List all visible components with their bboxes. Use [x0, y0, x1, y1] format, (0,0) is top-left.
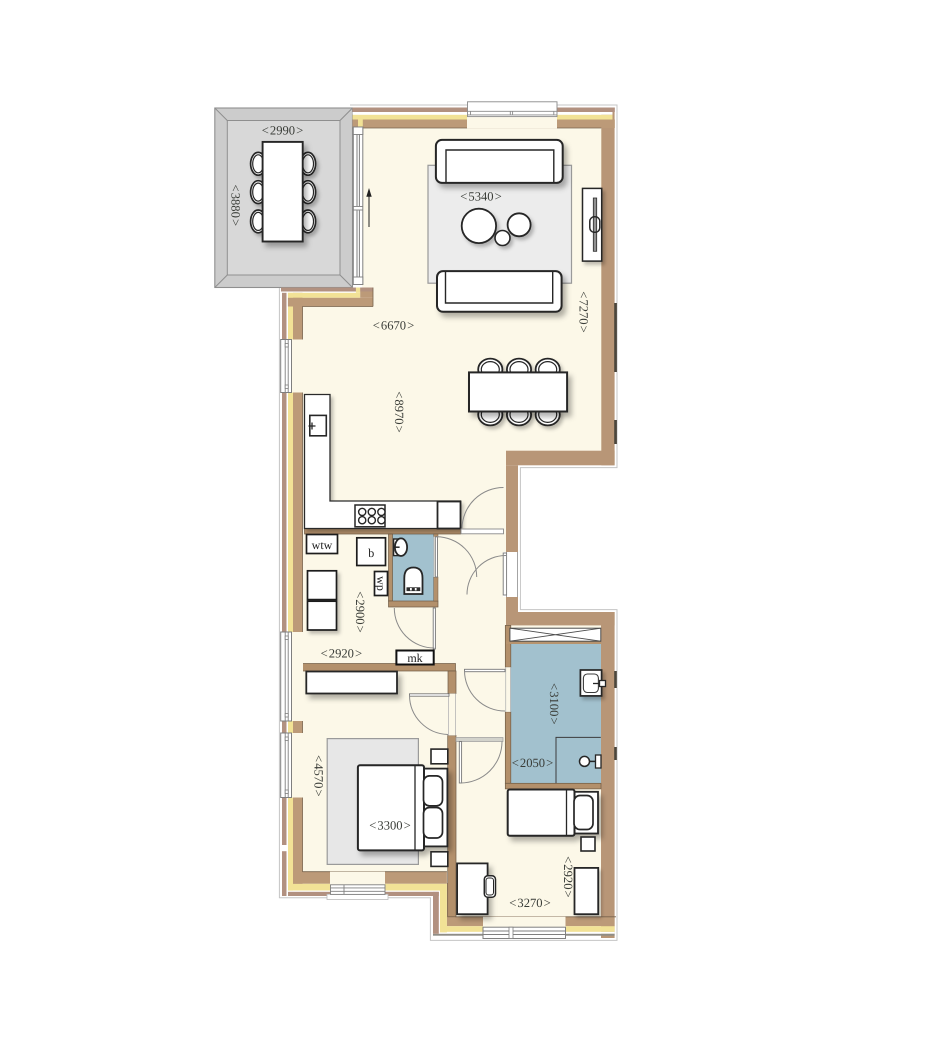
- svg-text:< 6670 >: < 6670 >: [373, 319, 415, 333]
- svg-text:< 2050 >: < 2050 >: [512, 756, 554, 770]
- svg-text:b: b: [368, 546, 374, 560]
- svg-text:wp: wp: [374, 576, 388, 591]
- svg-text:< 2900 >: < 2900 >: [353, 591, 367, 633]
- svg-text:< 3300 >: < 3300 >: [369, 819, 411, 833]
- svg-text:< 4570 >: < 4570 >: [311, 755, 325, 797]
- svg-text:< 2920 >: < 2920 >: [561, 856, 575, 898]
- svg-text:< 5340 >: < 5340 >: [460, 190, 502, 204]
- svg-text:mk: mk: [407, 651, 422, 665]
- svg-text:< 3270 >: < 3270 >: [509, 896, 551, 910]
- svg-text:< 2920 >: < 2920 >: [321, 646, 363, 660]
- svg-text:< 3100 >: < 3100 >: [547, 683, 561, 725]
- svg-text:< 8970 >: < 8970 >: [392, 391, 406, 433]
- svg-text:< 2990 >: < 2990 >: [262, 124, 304, 138]
- svg-text:wtw: wtw: [312, 538, 333, 552]
- svg-text:< 7270 >: < 7270 >: [576, 291, 590, 333]
- svg-text:< 3880 >: < 3880 >: [229, 185, 243, 227]
